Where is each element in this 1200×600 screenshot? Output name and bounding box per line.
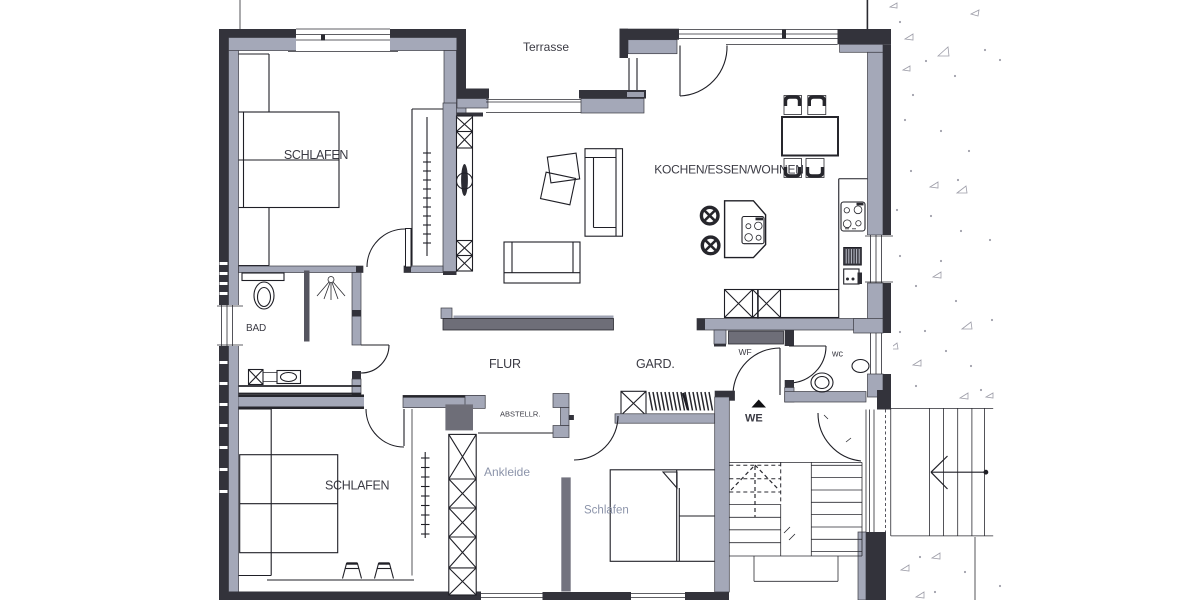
svg-text:KOCHEN/ESSEN/WOHNEN: KOCHEN/ESSEN/WOHNEN [654,163,804,177]
svg-text:WF: WF [739,347,752,357]
svg-text:BAD: BAD [246,323,266,334]
svg-text:FLUR: FLUR [489,357,521,371]
svg-text:SCHLAFEN: SCHLAFEN [325,479,390,493]
svg-text:Schlafen: Schlafen [584,505,629,517]
svg-text:Ankleide: Ankleide [484,465,530,479]
svg-text:WE: WE [745,413,763,425]
svg-text:GARD.: GARD. [636,357,675,371]
svg-text:ABSTELLR.: ABSTELLR. [500,410,540,419]
svg-text:Terrasse: Terrasse [523,40,569,54]
svg-text:wc: wc [831,349,843,359]
